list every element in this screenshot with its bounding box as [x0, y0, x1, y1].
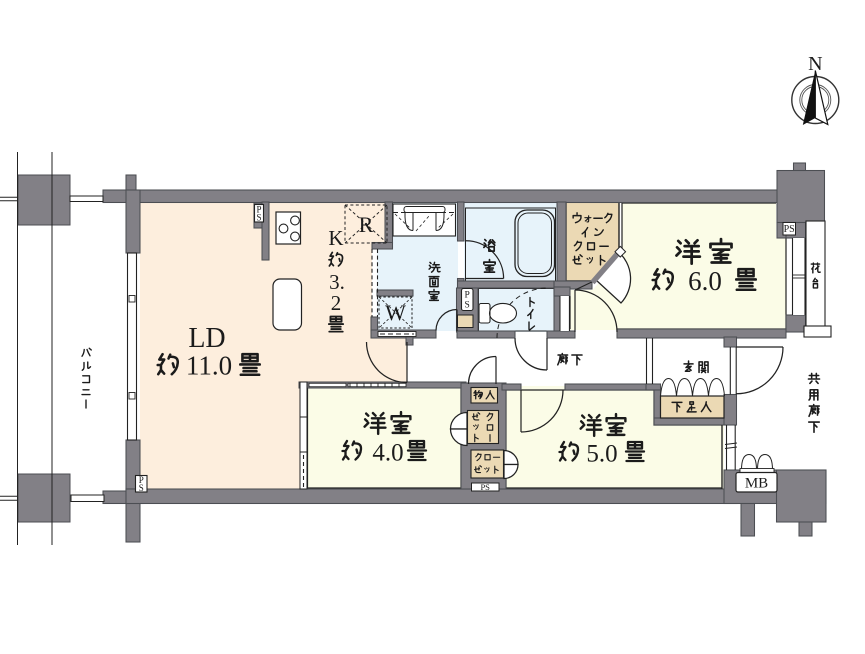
svg-text:P: P — [465, 291, 470, 301]
svg-text:11.0: 11.0 — [186, 351, 232, 381]
svg-text:PS: PS — [784, 224, 795, 235]
svg-text:2: 2 — [331, 291, 342, 315]
svg-text:MB: MB — [745, 476, 768, 492]
svg-text:S: S — [465, 301, 470, 311]
svg-text:W: W — [385, 300, 406, 325]
svg-text:R: R — [359, 212, 374, 237]
svg-text:4.0: 4.0 — [372, 440, 403, 467]
svg-text:S: S — [139, 483, 144, 493]
svg-text:LD: LD — [188, 323, 225, 354]
svg-text:N: N — [808, 53, 822, 75]
svg-text:5.0: 5.0 — [586, 441, 617, 468]
svg-text:6.0: 6.0 — [688, 266, 722, 296]
svg-text:S: S — [256, 213, 261, 223]
svg-text:PS: PS — [480, 482, 490, 492]
svg-text:K: K — [328, 226, 343, 250]
